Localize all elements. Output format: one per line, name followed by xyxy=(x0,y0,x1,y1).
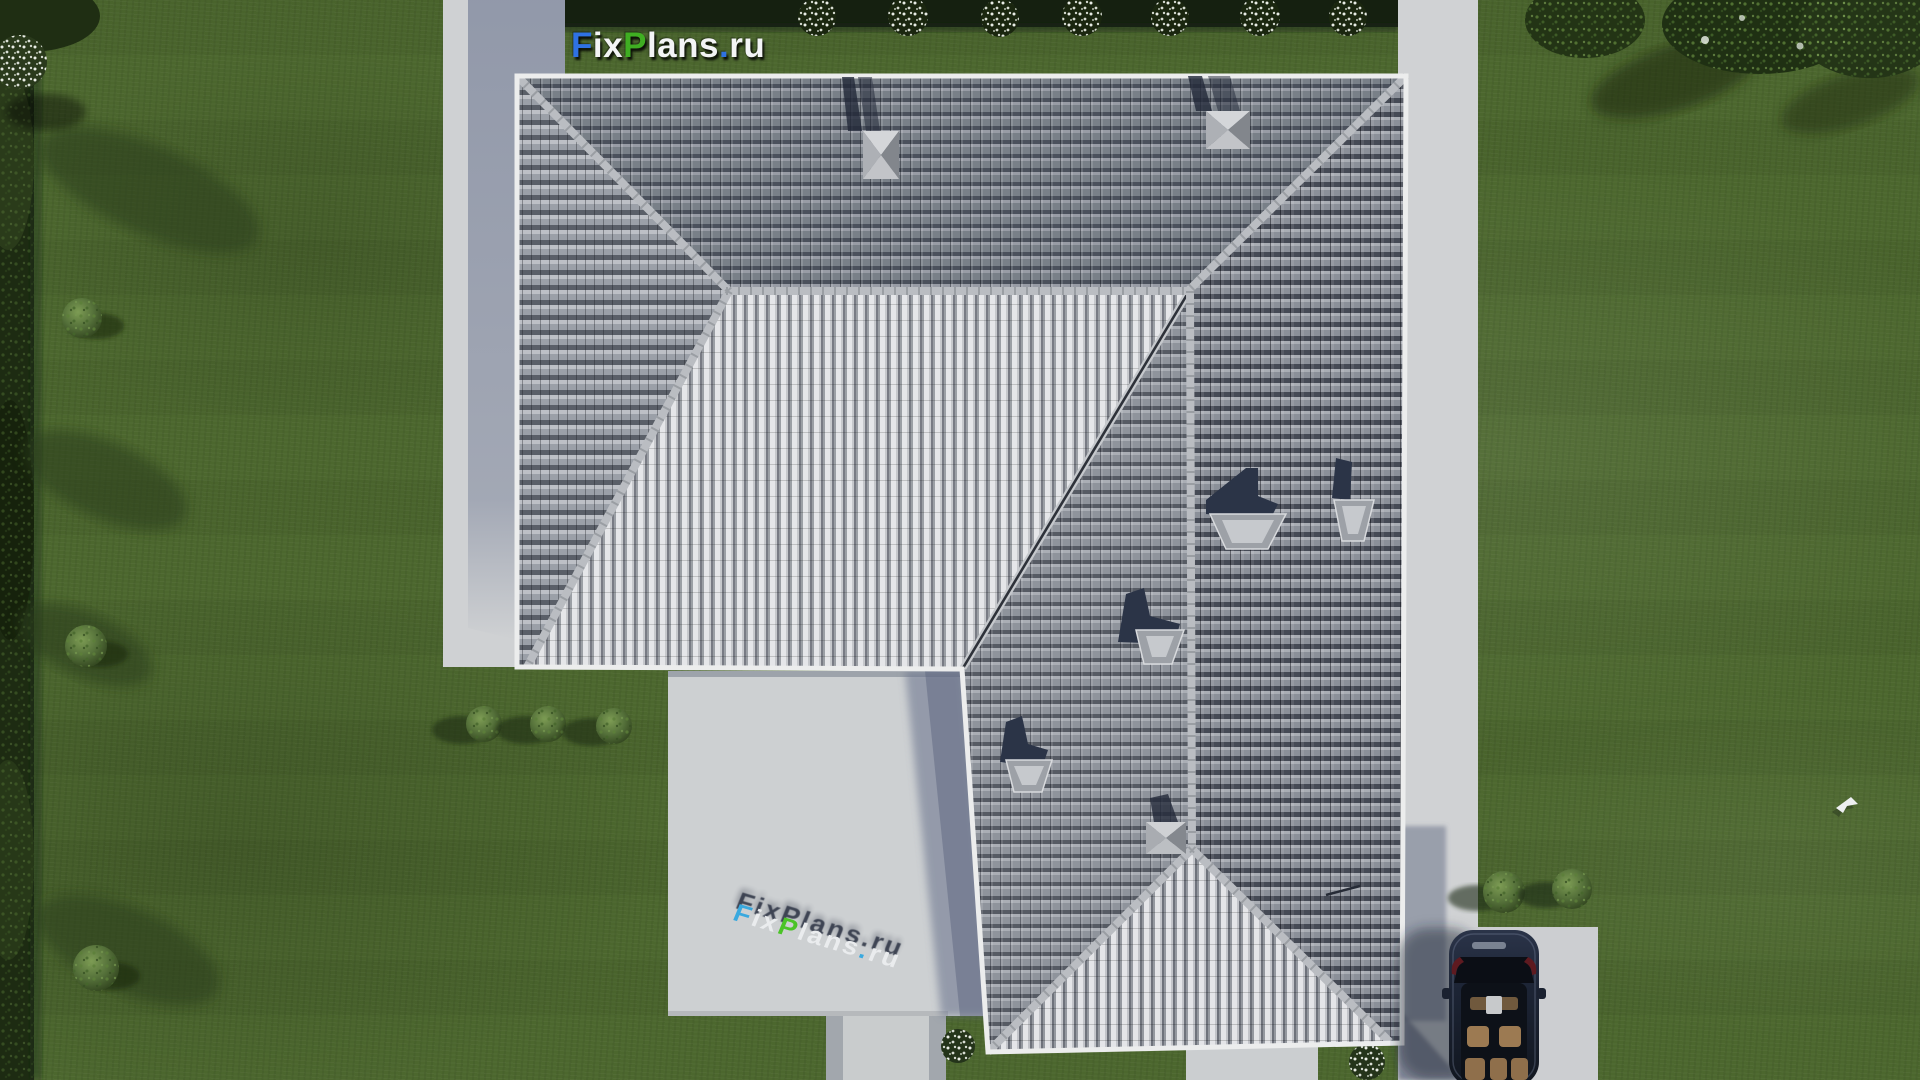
logo-letter-f: F xyxy=(571,26,593,65)
gable-walkway xyxy=(1186,1046,1318,1080)
car-windshield xyxy=(1454,957,1534,983)
bush xyxy=(1518,869,1592,909)
logo-letters-ru: ru xyxy=(729,26,765,65)
car-seat-front-left xyxy=(1467,1026,1489,1047)
brand-logo: FixPlans.ru xyxy=(571,26,765,66)
east-walkway xyxy=(1398,0,1478,927)
bush xyxy=(562,708,632,746)
car-seat-rear-mid xyxy=(1490,1058,1507,1080)
logo-letters-ix: ix xyxy=(593,26,623,65)
patio-bottom-edge xyxy=(668,1011,948,1016)
trees-top-right xyxy=(1525,0,1920,147)
car-seat-rear-left xyxy=(1465,1058,1485,1080)
logo-letters-lans: lans xyxy=(647,26,719,65)
corner-tree-top-left xyxy=(0,0,100,130)
logo-letter-p: P xyxy=(623,26,647,65)
hedge-left xyxy=(0,0,42,1080)
site-plan-render: FixPlans.ru FixPlans.ru xyxy=(0,0,1920,1080)
bird-sprite xyxy=(1832,797,1858,817)
car xyxy=(1398,928,1546,1080)
car-mirror-right xyxy=(1537,988,1546,999)
bush xyxy=(62,298,124,339)
car-seat-rear-right xyxy=(1511,1058,1528,1080)
patio-walkway xyxy=(826,1016,946,1080)
car-seat-front-right xyxy=(1499,1026,1521,1047)
car-console xyxy=(1486,996,1502,1014)
bush xyxy=(432,706,502,744)
bush xyxy=(496,706,566,744)
paver-border xyxy=(826,1016,843,1080)
car-mirror-left xyxy=(1442,988,1451,999)
tree-shadows-left xyxy=(6,102,275,1028)
patio-side-bushes xyxy=(432,706,632,746)
car-hood-badge xyxy=(1472,942,1506,949)
scene-graphics xyxy=(0,0,1920,1080)
logo-dot: . xyxy=(719,26,729,65)
